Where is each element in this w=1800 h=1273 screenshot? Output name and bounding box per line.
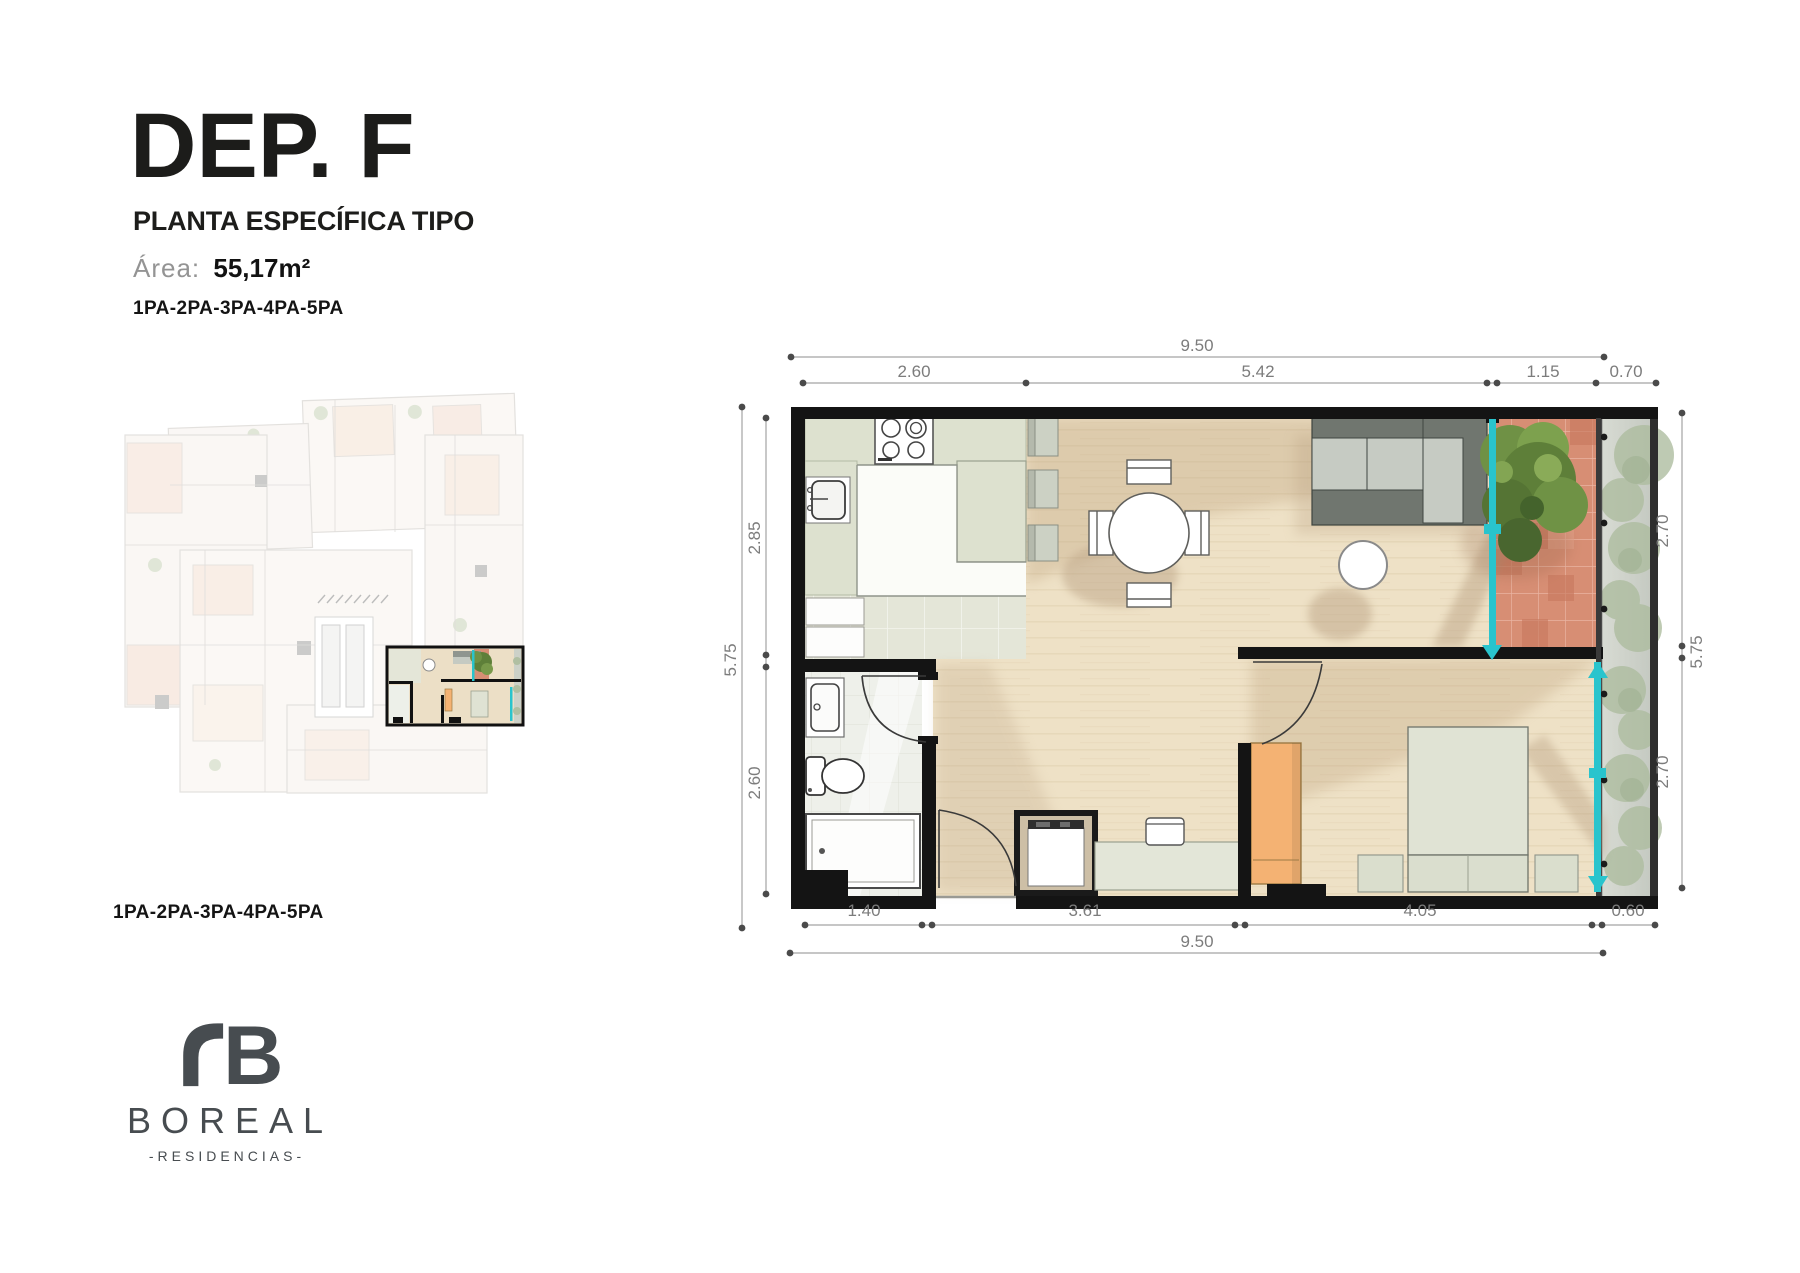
dining-table [1109, 493, 1189, 573]
kitchen-sink [806, 477, 850, 523]
brand-monogram-icon: B [169, 1012, 281, 1088]
highlighted-unit-f [387, 647, 523, 725]
planter-strip [1598, 407, 1674, 896]
dim-bottom-total: 9.50 [1180, 932, 1213, 951]
area-line: Área: 55,17m² [133, 253, 474, 284]
brand-logo: B BOREAL -RESIDENCIAS- [105, 1012, 345, 1164]
header: DEP. F PLANTA ESPECÍFICA TIPO Área: 55,1… [130, 100, 474, 320]
dim-left: 5.75 [721, 643, 740, 676]
dim-top-seg: 0.70 [1609, 362, 1642, 381]
area-label: Área: [133, 253, 200, 283]
area-value: 55,17m² [213, 253, 310, 283]
side-table [1339, 541, 1387, 589]
dim-top-seg: 1.15 [1526, 362, 1559, 381]
dim-bottom-seg: 0.60 [1611, 901, 1644, 920]
floor-plan-svg: 9.50 2.60 5.42 1.15 0.70 2.85 5.75 2.60 … [600, 280, 1740, 980]
page-title: DEP. F [130, 100, 474, 192]
sofa [1312, 418, 1487, 525]
svg-text:B: B [223, 1012, 281, 1088]
main-floor-plan: 9.50 2.60 5.42 1.15 0.70 2.85 5.75 2.60 … [600, 280, 1740, 980]
desk-chair [1146, 818, 1184, 845]
nightstand [1358, 855, 1403, 892]
dim-top-seg: 2.60 [897, 362, 930, 381]
floorplan-page: DEP. F PLANTA ESPECÍFICA TIPO Área: 55,1… [0, 0, 1800, 1273]
dim-right: 2.70 [1653, 755, 1672, 788]
stove [875, 412, 933, 464]
page-subtitle: PLANTA ESPECÍFICA TIPO [133, 206, 474, 237]
dim-right: 2.70 [1653, 514, 1672, 547]
dim-right: 5.75 [1687, 635, 1706, 668]
levels-caption-bottom: 1PA-2PA-3PA-4PA-5PA [113, 902, 324, 924]
dim-bottom-seg: 3.61 [1068, 901, 1101, 920]
faded-building [125, 393, 523, 793]
dim-top-seg: 5.42 [1241, 362, 1274, 381]
dim-bottom-seg: 1.40 [847, 901, 880, 920]
brand-name: BOREAL [105, 1100, 345, 1142]
washbasin [806, 678, 844, 737]
levels-caption-top: 1PA-2PA-3PA-4PA-5PA [133, 298, 474, 320]
building-key-plan [85, 335, 535, 795]
toilet [806, 757, 864, 795]
wardrobe [1251, 743, 1301, 884]
bar-stools [1028, 416, 1058, 561]
brand-tagline: -RESIDENCIAS- [105, 1148, 345, 1164]
dim-top-total: 9.50 [1180, 336, 1213, 355]
kitchen-appliance [806, 627, 864, 657]
dim-left: 2.60 [745, 766, 764, 799]
dim-left: 2.85 [745, 521, 764, 554]
kitchen-appliance [806, 598, 864, 625]
tv-unit [1014, 810, 1098, 896]
nightstand [1535, 855, 1578, 892]
building-key-plan-svg [85, 335, 535, 795]
dim-bottom-seg: 4.05 [1403, 901, 1436, 920]
